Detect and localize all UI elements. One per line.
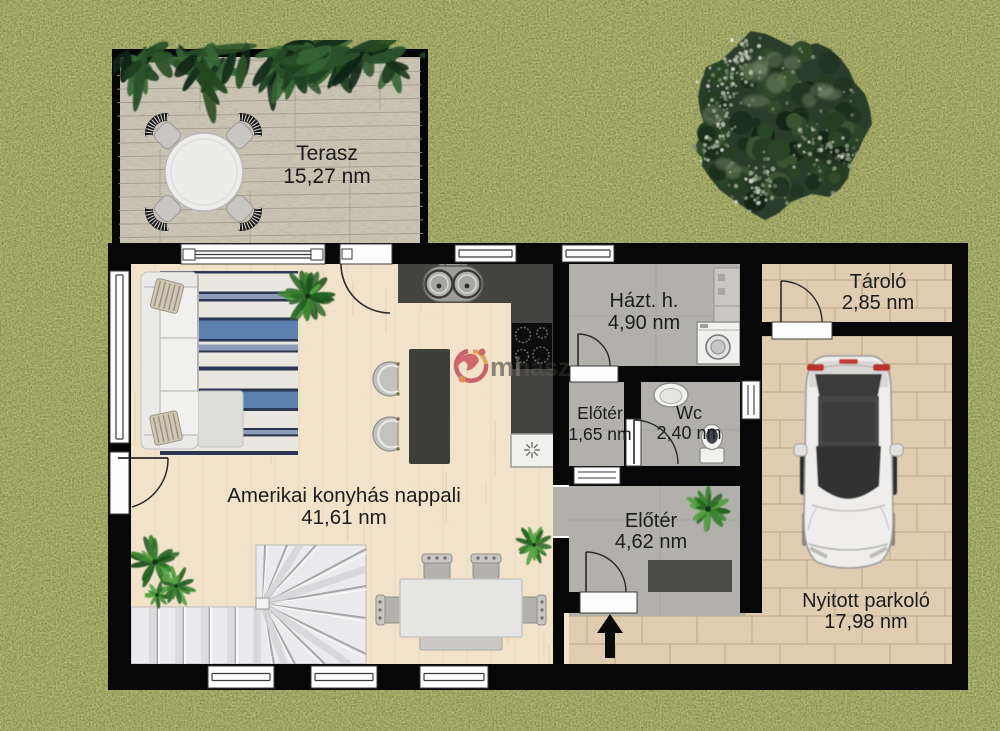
svg-text:Tároló: Tároló — [850, 271, 907, 293]
svg-text:17,98 nm: 17,98 nm — [824, 611, 907, 633]
svg-text:2,40 nm: 2,40 nm — [656, 423, 721, 443]
svg-text:Előtér: Előtér — [577, 403, 623, 423]
svg-text:Előtér: Előtér — [625, 510, 678, 532]
svg-text:Wc: Wc — [676, 403, 702, 423]
svg-text:4,62 nm: 4,62 nm — [615, 531, 687, 553]
svg-text:hász: hász — [515, 354, 571, 382]
svg-text:Nyitott parkoló: Nyitott parkoló — [802, 590, 930, 612]
svg-text:4,90 nm: 4,90 nm — [608, 312, 680, 334]
svg-text:1,65 nm: 1,65 nm — [568, 424, 631, 444]
svg-text:Amerikai konyhás nappali: Amerikai konyhás nappali — [227, 484, 461, 507]
svg-text:Terasz: Terasz — [296, 142, 358, 165]
svg-text:41,61 nm: 41,61 nm — [301, 506, 386, 529]
svg-text:Házt. h.: Házt. h. — [610, 290, 679, 312]
svg-text:15,27 nm: 15,27 nm — [283, 165, 371, 188]
svg-text:2,85 nm: 2,85 nm — [842, 292, 914, 314]
